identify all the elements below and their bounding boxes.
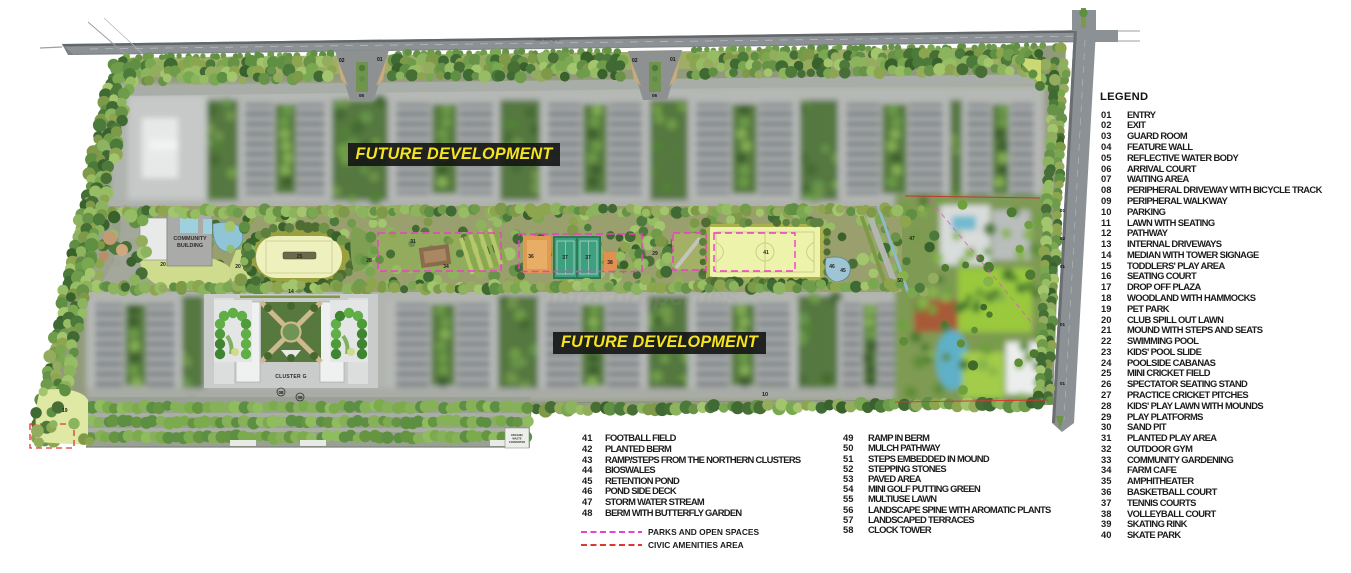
svg-text:09: 09 (297, 395, 303, 400)
svg-text:ORGANIC: ORGANIC (511, 433, 523, 437)
svg-text:infra properties: infra properties (548, 281, 739, 311)
svg-text:FUTURE DEVELOPMENT: FUTURE DEVELOPMENT (356, 145, 555, 163)
svg-text:08: 08 (278, 390, 284, 395)
svg-text:10: 10 (762, 392, 768, 398)
svg-text:28: 28 (366, 258, 372, 264)
svg-text:19: 19 (62, 408, 68, 414)
svg-text:36: 36 (528, 254, 534, 260)
svg-text:FUTURE DEVELOPMENT: FUTURE DEVELOPMENT (561, 333, 760, 351)
svg-text:BUILDING: BUILDING (177, 243, 203, 249)
svg-text:01: 01 (670, 57, 676, 63)
svg-text:06: 06 (359, 93, 365, 98)
svg-text:31: 31 (410, 239, 416, 245)
svg-text:COMMUNITY: COMMUNITY (173, 236, 207, 242)
svg-text:01: 01 (1060, 264, 1066, 269)
svg-text:38: 38 (607, 260, 613, 266)
svg-text:WASTE: WASTE (512, 437, 521, 441)
svg-text:25: 25 (297, 254, 303, 260)
svg-text:01: 01 (1060, 381, 1066, 386)
svg-text:46: 46 (829, 264, 835, 270)
svg-text:50: 50 (897, 278, 903, 284)
svg-text:34: 34 (443, 264, 449, 270)
svg-text:CLUSTER G: CLUSTER G (275, 374, 307, 380)
svg-text:01: 01 (1060, 322, 1066, 327)
svg-text:37: 37 (585, 255, 591, 261)
svg-text:SIM ROAD-2: SIM ROAD-2 (535, 37, 560, 42)
svg-text:47: 47 (909, 236, 915, 242)
svg-text:41: 41 (763, 250, 769, 256)
svg-text:02: 02 (632, 58, 638, 64)
svg-text:20: 20 (235, 264, 241, 270)
svg-text:37: 37 (562, 255, 568, 261)
svg-text:02: 02 (1060, 236, 1066, 241)
svg-text:20: 20 (160, 262, 166, 268)
svg-text:29: 29 (652, 251, 658, 257)
svg-text:01: 01 (377, 57, 383, 63)
svg-text:06: 06 (652, 93, 658, 98)
svg-text:CONVERTER: CONVERTER (509, 440, 525, 444)
svg-text:45: 45 (840, 268, 846, 274)
svg-text:01: 01 (1060, 208, 1066, 213)
svg-text:14: 14 (288, 289, 294, 295)
svg-text:02: 02 (339, 58, 345, 64)
